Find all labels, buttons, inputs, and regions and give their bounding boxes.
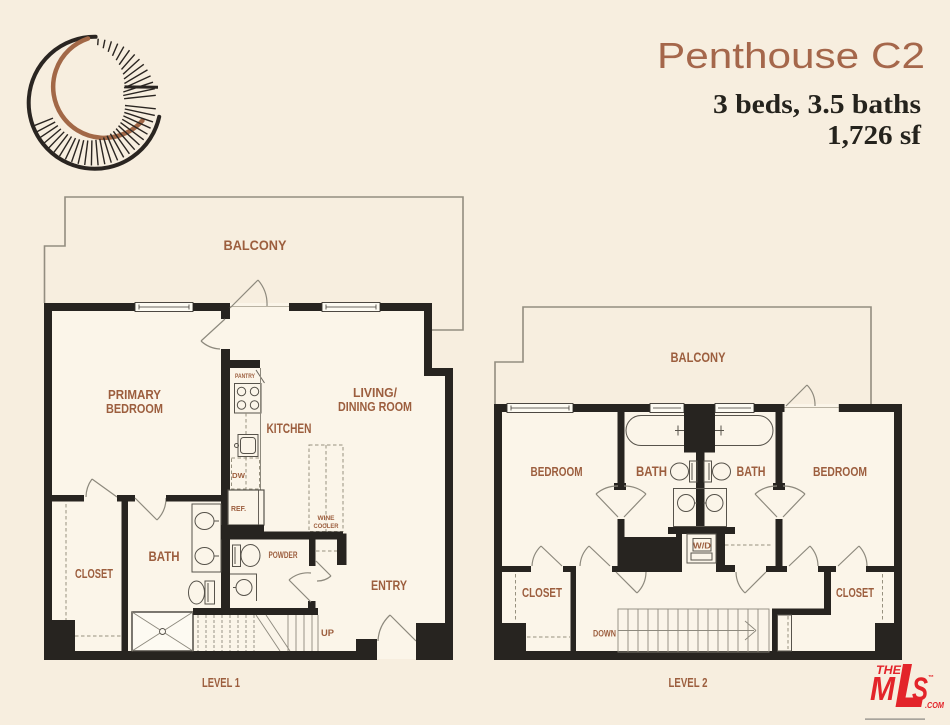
- svg-text:Penthouse C2: Penthouse C2: [657, 35, 925, 76]
- svg-text:BATH: BATH: [149, 549, 180, 564]
- svg-text:BALCONY: BALCONY: [671, 350, 726, 365]
- svg-text:M: M: [870, 670, 896, 707]
- svg-text:PANTRY: PANTRY: [235, 373, 255, 380]
- svg-text:LEVEL 2: LEVEL 2: [669, 675, 708, 690]
- svg-text:ENTRY: ENTRY: [371, 578, 407, 593]
- svg-text:1,726 sf: 1,726 sf: [827, 120, 922, 150]
- svg-text:BALCONY: BALCONY: [224, 238, 287, 253]
- svg-text:BEDROOM: BEDROOM: [106, 401, 163, 416]
- svg-text:W/D: W/D: [693, 542, 711, 551]
- svg-text:UP: UP: [321, 628, 335, 639]
- svg-text:BATH: BATH: [737, 464, 766, 479]
- svg-text:LEVEL 1: LEVEL 1: [202, 675, 240, 690]
- svg-text:DINING ROOM: DINING ROOM: [338, 399, 412, 414]
- svg-text:3 beds, 3.5 baths: 3 beds, 3.5 baths: [713, 89, 921, 119]
- svg-text:CLOSET: CLOSET: [75, 567, 113, 581]
- svg-text:DOWN: DOWN: [593, 629, 616, 640]
- svg-text:CLOSET: CLOSET: [836, 586, 874, 600]
- svg-text:REF.: REF.: [231, 506, 246, 513]
- svg-text:COOLER: COOLER: [314, 523, 339, 530]
- svg-text:PRIMARY: PRIMARY: [108, 387, 161, 402]
- svg-text:BEDROOM: BEDROOM: [531, 464, 583, 479]
- svg-text:WINE: WINE: [318, 515, 335, 522]
- svg-text:.COM: .COM: [925, 700, 945, 710]
- svg-text:BEDROOM: BEDROOM: [813, 464, 867, 479]
- svg-text:BATH: BATH: [636, 464, 667, 479]
- svg-text:LIVING/: LIVING/: [353, 385, 397, 400]
- svg-text:DW: DW: [232, 473, 245, 480]
- svg-text:POWDER: POWDER: [269, 550, 298, 561]
- svg-text:™: ™: [928, 674, 934, 681]
- svg-text:CLOSET: CLOSET: [522, 586, 562, 600]
- svg-text:KITCHEN: KITCHEN: [267, 421, 312, 436]
